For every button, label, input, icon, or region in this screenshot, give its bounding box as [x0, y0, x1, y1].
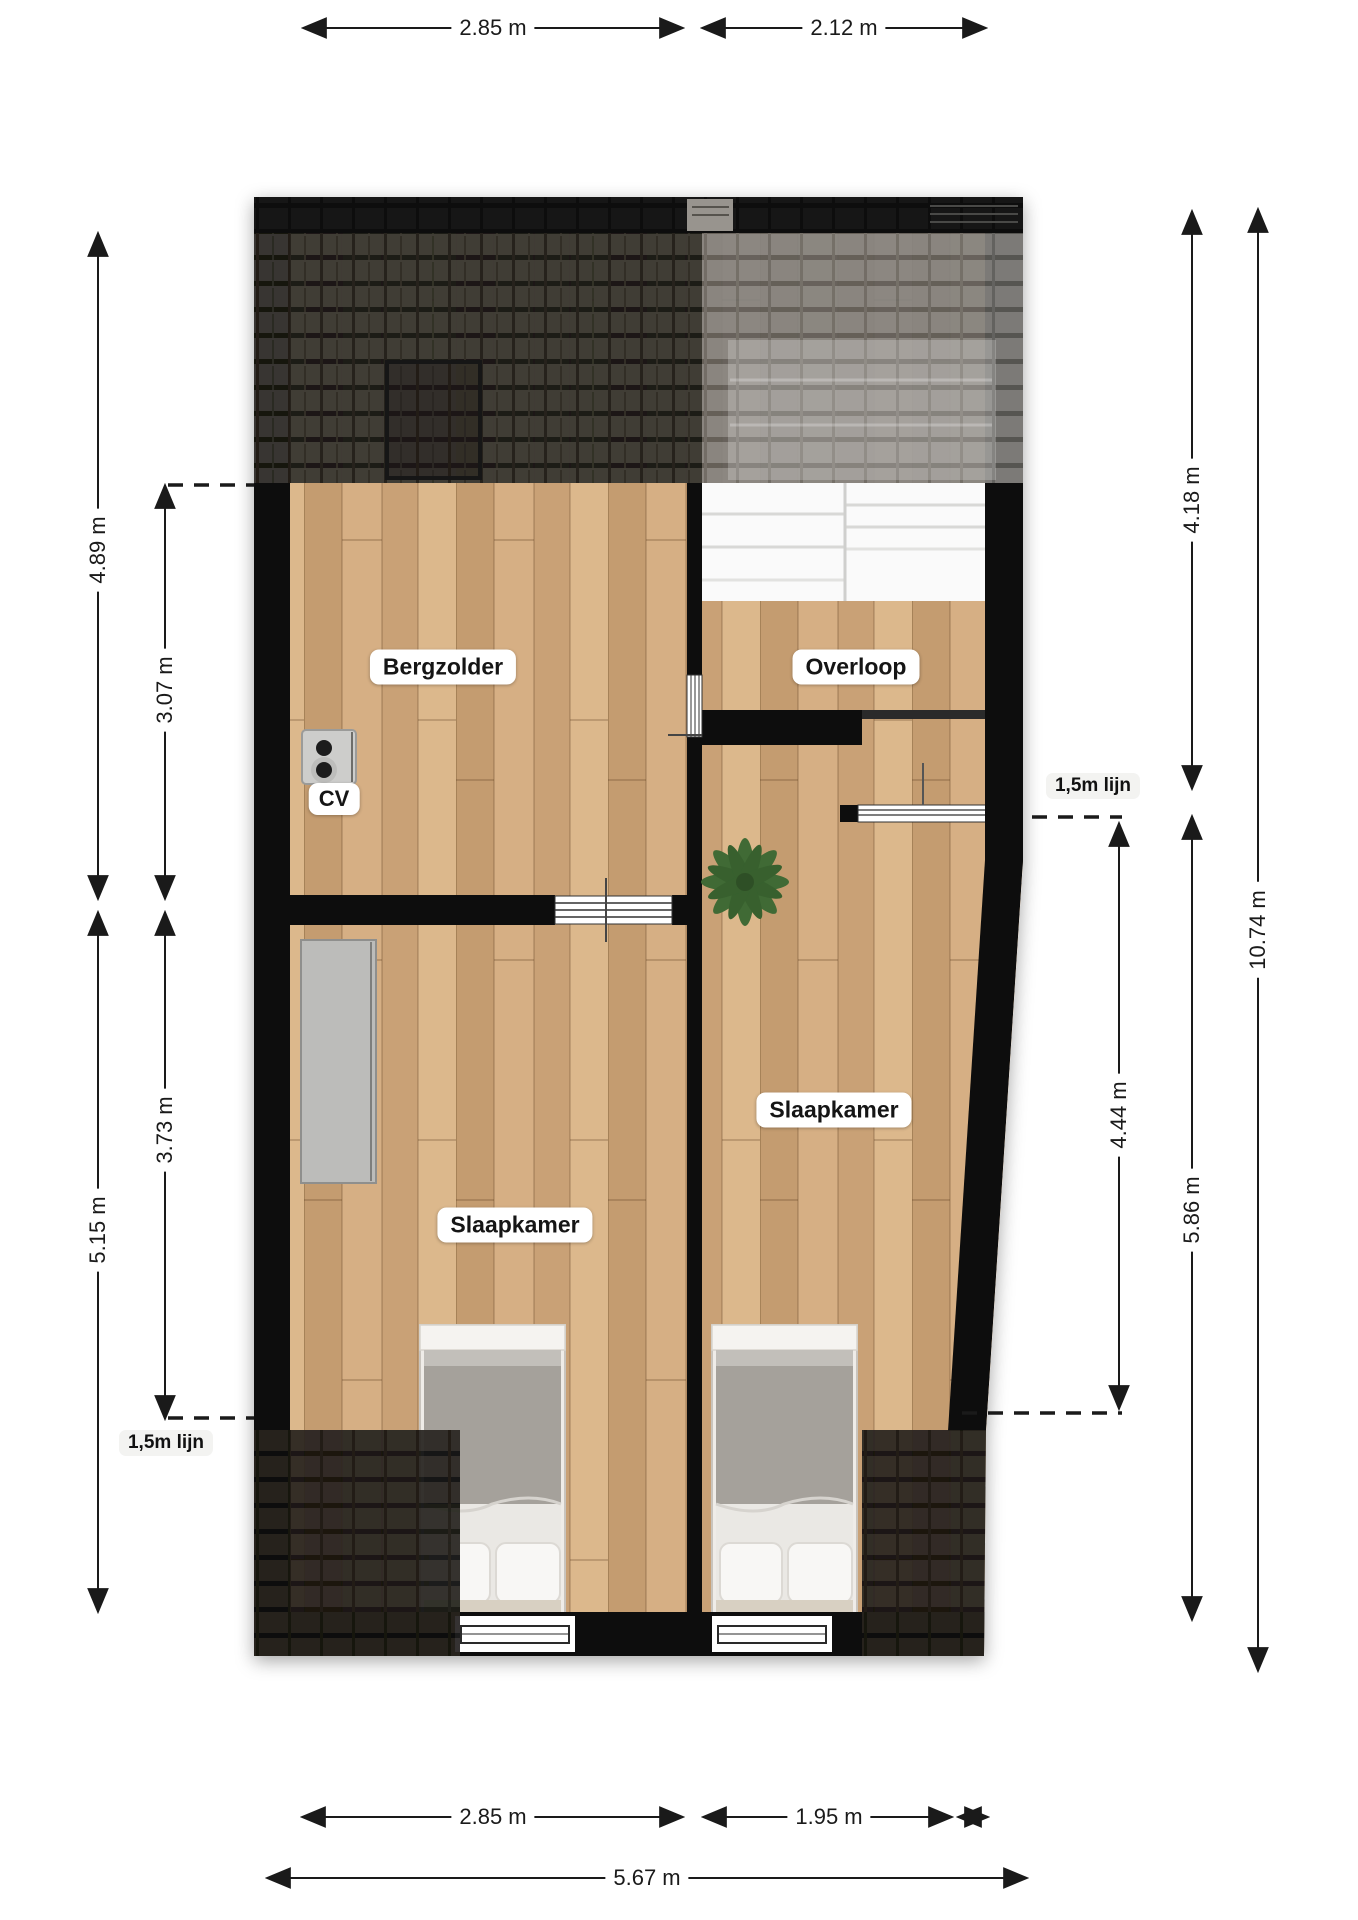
- roof-ridge-band: [254, 197, 1023, 233]
- dim-bottom-left: 2.85 m: [451, 1804, 534, 1830]
- dim-right-outer-total: 10.74 m: [1245, 882, 1271, 978]
- window-left: [455, 1616, 575, 1652]
- roof-bottom-left: [254, 1430, 460, 1656]
- floorplan-page: Bergzolder Overloop CV Slaapkamer Slaapk…: [0, 0, 1358, 1920]
- room-label-slaapkamer-left: Slaapkamer: [437, 1208, 592, 1243]
- cv-unit: [302, 730, 356, 784]
- plant: [701, 838, 789, 926]
- bed-right: [712, 1325, 857, 1613]
- dim-top-right: 2.12 m: [802, 15, 885, 41]
- clearance-line-label-right: 1,5m lijn: [1046, 773, 1140, 799]
- roof-top-left: [254, 233, 702, 483]
- dim-left-outer-top: 4.89 m: [85, 508, 111, 591]
- room-label-cv: CV: [309, 783, 360, 815]
- dim-left-inner-top: 3.07 m: [152, 648, 178, 731]
- room-label-overloop: Overloop: [793, 650, 920, 685]
- roof-bottom-right: [862, 1430, 988, 1656]
- dim-top-left: 2.85 m: [451, 15, 534, 41]
- dim-bottom-right: 1.95 m: [787, 1804, 870, 1830]
- floorplan-canvas: [0, 0, 1358, 1920]
- dim-left-inner-bottom: 3.73 m: [152, 1088, 178, 1171]
- skylight: [387, 362, 480, 478]
- roof-top-right: [702, 233, 1023, 483]
- dim-right-inner-top: 4.18 m: [1179, 458, 1205, 541]
- window-right: [712, 1616, 832, 1652]
- room-label-bergzolder: Bergzolder: [370, 650, 516, 685]
- dim-left-outer-bottom: 5.15 m: [85, 1188, 111, 1271]
- wardrobe: [301, 940, 376, 1183]
- dim-bottom-total: 5.67 m: [605, 1865, 688, 1891]
- clearance-line-label-left: 1,5m lijn: [119, 1430, 213, 1456]
- dim-right-inner-bottom: 5.86 m: [1179, 1168, 1205, 1251]
- room-label-slaapkamer-right: Slaapkamer: [756, 1093, 911, 1128]
- stairs: [702, 483, 992, 601]
- dim-right-attic: 4.44 m: [1106, 1073, 1132, 1156]
